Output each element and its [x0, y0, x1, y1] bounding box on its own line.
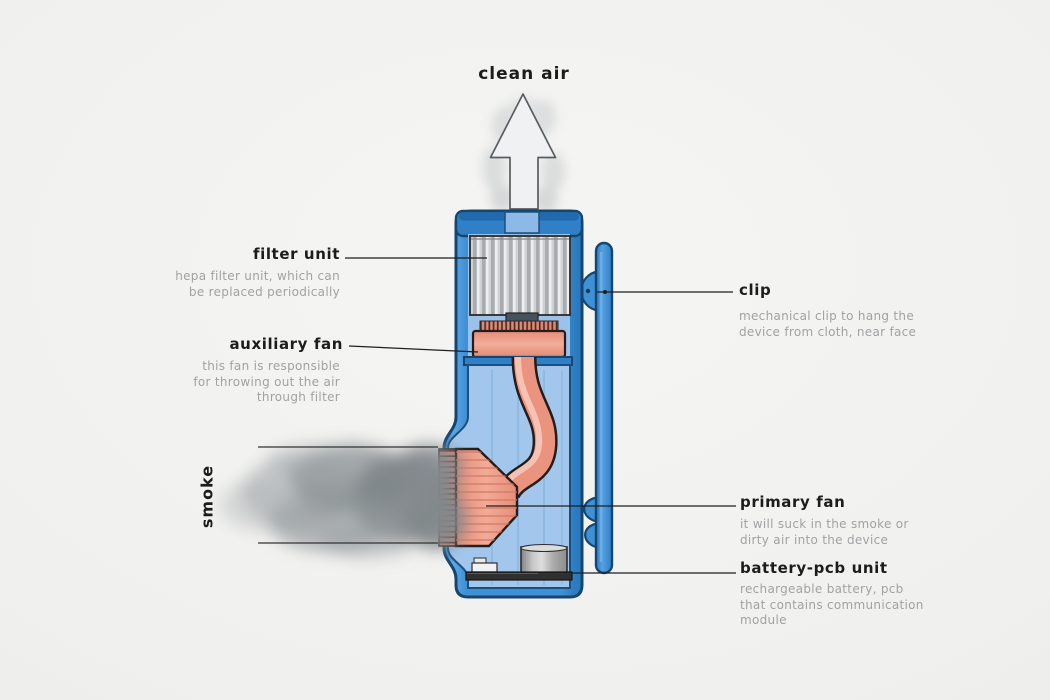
- pcb-component: [472, 563, 497, 572]
- smoke-label: smoke: [198, 457, 217, 537]
- clip-description: mechanical clip to hang the device from …: [739, 309, 979, 340]
- filter-unit-label: filter unit: [140, 245, 340, 263]
- primary-fan-description: it will suck in the smoke or dirty air i…: [740, 517, 980, 548]
- clean-air-label: clean air: [453, 64, 595, 84]
- device-cap: [456, 211, 582, 236]
- air-outlet-opening: [505, 212, 539, 233]
- auxiliary-fan-description: this fan is responsible for throwing out…: [110, 359, 340, 406]
- filter-unit-description: hepa filter unit, which can be replaced …: [110, 269, 340, 300]
- smoke-cloud: [220, 444, 466, 558]
- auxiliary-fan-label: auxiliary fan: [143, 335, 343, 353]
- primary-fan-label: primary fan: [740, 493, 845, 511]
- diagram-canvas: clean air filter unit hepa filter unit, …: [0, 0, 1050, 700]
- auxiliary-fan-part: [473, 321, 565, 357]
- battery-pcb-unit-description: rechargeable battery, pcb that contains …: [740, 582, 980, 629]
- battery-pcb-unit-label: battery-pcb unit: [740, 559, 888, 577]
- filter-unit-part: [470, 236, 570, 315]
- clip-label: clip: [739, 281, 771, 299]
- clip-pivot-dot: [586, 289, 590, 293]
